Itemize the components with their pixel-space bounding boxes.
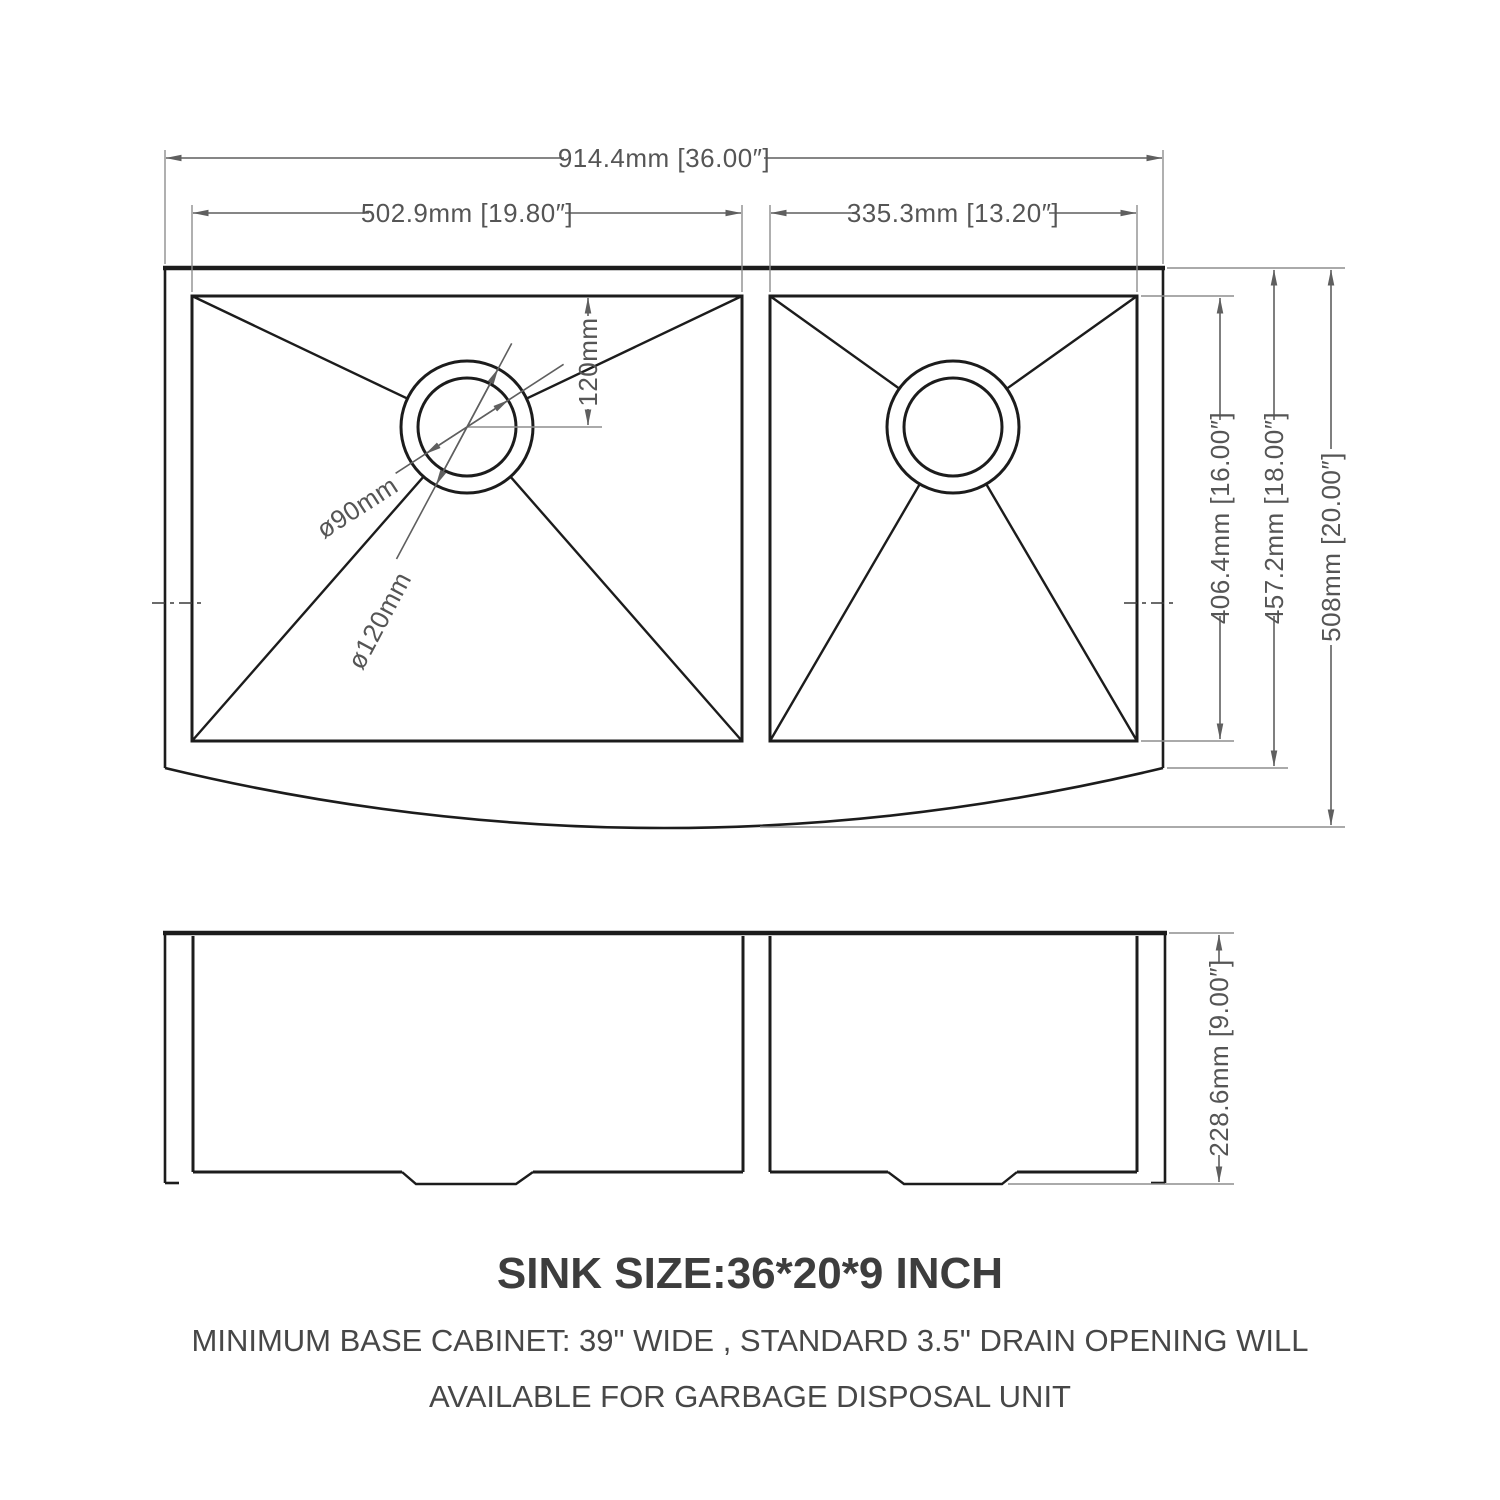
dim-overall-depth: 508mm [20.00″] [1316, 270, 1346, 825]
front-outer-body [163, 933, 1167, 1183]
plan-outer-body [163, 268, 1165, 828]
notes-block: SINK SIZE:36*20*9 INCH MINIMUM BASE CABI… [192, 1249, 1309, 1414]
front-extension-lines [1008, 933, 1234, 1184]
dim-right-bowl-width: 335.3mm [13.20″] [771, 198, 1136, 228]
sink-size-title: SINK SIZE:36*20*9 INCH [497, 1249, 1003, 1298]
left-bowl-width-label: 502.9mm [19.80″] [361, 198, 573, 228]
note-line-2: AVAILABLE FOR GARBAGE DISPOSAL UNIT [429, 1379, 1071, 1414]
overall-depth-label: 508mm [20.00″] [1316, 452, 1346, 642]
front-right-bowl [770, 936, 1137, 1184]
left-drain-fitting [402, 1172, 533, 1184]
dim-height: 228.6mm [9.00″] [1204, 935, 1234, 1182]
drain-offset-label: 120mm [573, 317, 603, 406]
plan-right-bowl [770, 296, 1137, 741]
note-line-1: MINIMUM BASE CABINET: 39" WIDE , STANDAR… [192, 1323, 1309, 1358]
bowl-depth-label: 406.4mm [16.00″] [1205, 412, 1235, 624]
right-bowl-width-label: 335.3mm [13.20″] [847, 198, 1059, 228]
front-left-bowl [193, 936, 743, 1184]
height-label: 228.6mm [9.00″] [1204, 959, 1234, 1156]
front-view: 228.6mm [9.00″] [163, 933, 1234, 1184]
plan-extension-lines [165, 150, 1345, 827]
dim-drain-offset: 120mm [573, 298, 603, 425]
drawing-svg: 914.4mm [36.00″] 502.9mm [19.80″] 335.3m… [0, 0, 1500, 1500]
sink-dimension-drawing: 914.4mm [36.00″] 502.9mm [19.80″] 335.3m… [0, 0, 1500, 1500]
right-drain-outer-circle [887, 361, 1019, 493]
dim-body-depth: 457.2mm [18.00″] [1259, 270, 1289, 766]
right-drain-inner-circle [904, 378, 1002, 476]
dim-overall-width: 914.4mm [36.00″] [166, 143, 1162, 173]
plan-left-bowl [192, 296, 742, 741]
right-drain-fitting [888, 1172, 1017, 1184]
dim-bowl-depth: 406.4mm [16.00″] [1205, 298, 1235, 739]
overall-width-label: 914.4mm [36.00″] [558, 143, 770, 173]
apron-front-curve [165, 768, 1163, 828]
body-depth-label: 457.2mm [18.00″] [1259, 412, 1289, 624]
plan-view: 914.4mm [36.00″] 502.9mm [19.80″] 335.3m… [152, 143, 1346, 828]
drain-diameter-leaders: ø90mm ø120mm [311, 343, 564, 674]
drain-inner-diameter-label: ø90mm [311, 470, 403, 545]
dim-left-bowl-width: 502.9mm [19.80″] [193, 198, 741, 228]
drain-outer-diameter-label: ø120mm [341, 567, 417, 674]
